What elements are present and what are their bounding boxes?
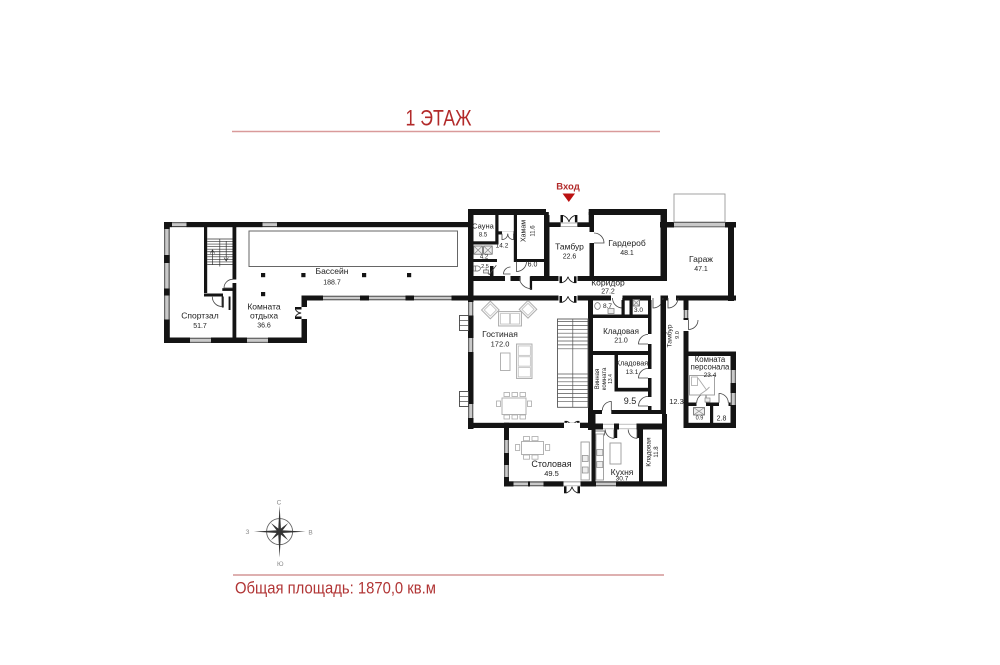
svg-text:172.0: 172.0 bbox=[491, 340, 510, 349]
svg-text:3.0: 3.0 bbox=[634, 307, 643, 314]
svg-text:Гостиная: Гостиная bbox=[482, 329, 518, 339]
svg-text:23.4: 23.4 bbox=[704, 372, 717, 379]
svg-text:51.7: 51.7 bbox=[193, 323, 207, 330]
svg-text:Кладовая: Кладовая bbox=[616, 359, 648, 368]
svg-text:188.7: 188.7 bbox=[323, 280, 341, 287]
svg-text:4.2: 4.2 bbox=[480, 254, 489, 260]
svg-text:0.9: 0.9 bbox=[696, 416, 704, 422]
svg-text:36.6: 36.6 bbox=[257, 323, 271, 330]
svg-text:1 ЭТАЖ: 1 ЭТАЖ bbox=[406, 106, 473, 131]
svg-text:27.2: 27.2 bbox=[601, 289, 615, 296]
svg-text:Кладовая: Кладовая bbox=[646, 437, 653, 467]
svg-text:Тамбур: Тамбур bbox=[666, 324, 674, 347]
svg-text:8.7: 8.7 bbox=[603, 303, 612, 310]
svg-text:2.8: 2.8 bbox=[717, 416, 727, 423]
svg-text:9.5: 9.5 bbox=[624, 396, 637, 406]
svg-text:6.0: 6.0 bbox=[528, 262, 538, 269]
svg-text:48.1: 48.1 bbox=[620, 250, 634, 257]
svg-text:Винная: Винная bbox=[595, 369, 601, 390]
svg-text:11.6: 11.6 bbox=[531, 225, 537, 237]
svg-text:21.0: 21.0 bbox=[614, 338, 628, 345]
svg-text:Тамбур: Тамбур bbox=[555, 242, 584, 252]
svg-text:отдыха: отдыха bbox=[250, 311, 278, 321]
svg-text:Сауна: Сауна bbox=[472, 222, 494, 231]
svg-text:11.8: 11.8 bbox=[654, 446, 660, 458]
svg-text:30.7: 30.7 bbox=[616, 476, 629, 483]
svg-text:Гардероб: Гардероб bbox=[608, 238, 646, 248]
svg-text:персонала: персонала bbox=[691, 363, 730, 372]
svg-text:49.5: 49.5 bbox=[544, 469, 559, 478]
svg-text:З: З bbox=[246, 529, 250, 536]
svg-text:Вход: Вход bbox=[556, 182, 580, 193]
svg-text:Ю: Ю bbox=[277, 561, 284, 568]
svg-text:Столовая: Столовая bbox=[531, 459, 571, 469]
svg-text:Кладовая: Кладовая bbox=[603, 327, 639, 336]
svg-text:Спортзал: Спортзал bbox=[181, 311, 219, 321]
svg-text:Коридор: Коридор bbox=[591, 278, 625, 288]
svg-text:22.6: 22.6 bbox=[563, 254, 577, 261]
svg-text:9.0: 9.0 bbox=[675, 331, 681, 339]
svg-text:Гараж: Гараж bbox=[689, 254, 713, 264]
svg-text:47.1: 47.1 bbox=[694, 266, 708, 273]
svg-text:13.1: 13.1 bbox=[626, 369, 639, 376]
svg-text:13.4: 13.4 bbox=[608, 374, 614, 384]
svg-text:Бассейн: Бассейн bbox=[316, 266, 349, 276]
svg-text:8.5: 8.5 bbox=[479, 233, 488, 239]
svg-text:2.5: 2.5 bbox=[481, 264, 489, 270]
svg-text:С: С bbox=[277, 500, 282, 507]
svg-text:14.2: 14.2 bbox=[496, 243, 509, 250]
svg-text:12.3: 12.3 bbox=[669, 397, 684, 406]
svg-text:Общая площадь: 1870,0 кв.м: Общая площадь: 1870,0 кв.м bbox=[235, 580, 436, 598]
svg-text:В: В bbox=[308, 530, 312, 537]
svg-text:Хамам: Хамам bbox=[521, 220, 528, 242]
